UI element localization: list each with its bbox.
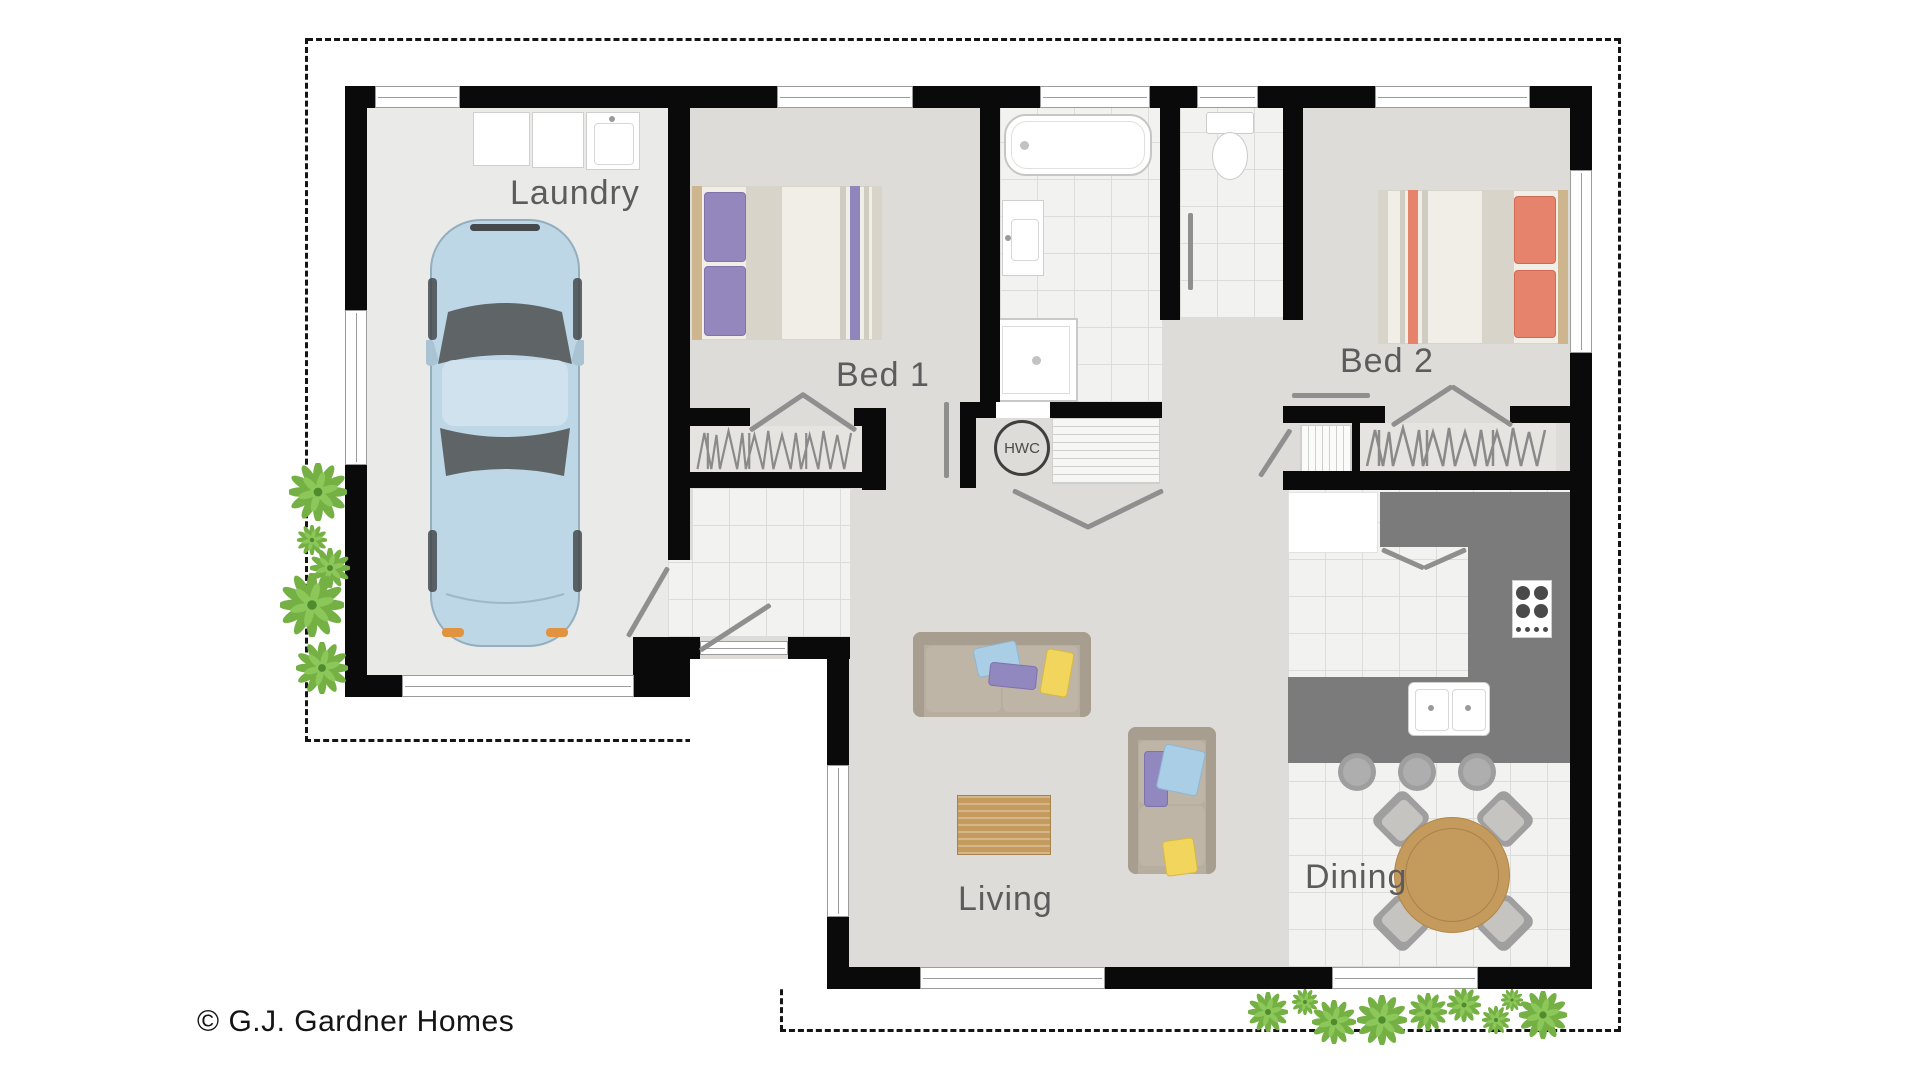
wall-hwc-nook: [960, 402, 976, 488]
floor-plan-canvas: Laundry Bed 1: [0, 0, 1920, 1080]
hwc-label: HWC: [1004, 440, 1040, 457]
wall-entry-right: [788, 637, 850, 659]
wall-bed2-wardrobe-left: [1283, 406, 1385, 423]
washing-machine-icon: [532, 112, 584, 168]
bar-stool-icon: [1398, 753, 1436, 791]
bathroom-window: [1040, 86, 1150, 108]
wall-wc-west: [1160, 108, 1180, 320]
shower-drain: [1032, 356, 1041, 365]
bathtub-drain: [1020, 141, 1029, 150]
wall-wc-east: [1283, 108, 1303, 320]
bed1-label: Bed 1: [836, 356, 930, 395]
bar-stool-icon: [1458, 753, 1496, 791]
bathroom-door-leaf: [944, 402, 949, 478]
bed1-window: [777, 86, 913, 108]
bed1-bed-icon: [692, 186, 882, 340]
car-icon: [426, 212, 584, 654]
bed2-door-leaf: [1292, 393, 1370, 398]
bed2-linen-cupboard: [1300, 425, 1352, 473]
plant-icon: [296, 642, 348, 694]
wall-bed2-wardrobe-right: [1510, 406, 1570, 423]
bed2-bed-icon: [1378, 190, 1568, 344]
plant-icon: [1447, 988, 1481, 1022]
plant-icon: [280, 573, 344, 637]
plant-icon: [1357, 995, 1407, 1045]
wardrobe-hangers-icon: [694, 427, 858, 473]
cooktop-icon: [1512, 580, 1552, 638]
dining-table-icon: [1394, 817, 1510, 933]
boundary-top: [307, 38, 1620, 41]
pantry: [1380, 492, 1468, 547]
wall-garage-corner: [633, 637, 690, 697]
garage-side-window: [345, 310, 367, 465]
entry-floor: [692, 488, 850, 637]
porch-area: [690, 659, 827, 989]
laundry-tub-icon: [586, 112, 640, 170]
garage-door: [402, 675, 634, 697]
bed2-window: [1375, 86, 1530, 108]
living-window: [920, 967, 1105, 989]
wall-garage-east: [668, 108, 690, 560]
wall-bed1-bath: [980, 108, 1000, 402]
kitchen-sink-icon: [1408, 682, 1490, 736]
vanity-icon: [1002, 200, 1044, 276]
plant-icon: [1519, 991, 1567, 1039]
living-label: Living: [958, 880, 1053, 919]
sofa-icon: [1128, 727, 1216, 874]
hot-water-cylinder-icon: HWC: [994, 420, 1050, 476]
plant-icon: [289, 463, 347, 521]
wall-bed1-wardrobe-bottom: [690, 472, 886, 488]
coffee-table-icon: [957, 795, 1051, 855]
plant-icon: [1312, 1000, 1356, 1044]
plant-icon: [1248, 992, 1288, 1032]
laundry-counter: [473, 112, 530, 166]
wc-window: [1197, 86, 1258, 108]
wall-linen-divider: [1352, 423, 1360, 471]
copyright-text: © G.J. Gardner Homes: [197, 1005, 514, 1039]
sofa-icon: [913, 632, 1091, 717]
laundry-label: Laundry: [510, 174, 640, 213]
boundary-right: [1618, 38, 1621, 1032]
wall-bed1-wardrobe-left: [690, 408, 750, 426]
garage-window: [375, 86, 460, 108]
plant-icon: [1409, 993, 1447, 1031]
dining-label: Dining: [1305, 858, 1407, 897]
linen-shelves: [1052, 418, 1160, 484]
fridge-space: [1288, 492, 1378, 553]
bar-stool-icon: [1338, 753, 1376, 791]
living-side-window: [827, 765, 849, 917]
wardrobe-hangers-icon: [1363, 424, 1553, 470]
wall-bed2-wardrobe-bottom: [1283, 471, 1570, 490]
toilet-icon: [1206, 112, 1254, 134]
bath-door-opening: [996, 402, 1050, 418]
bed2-label: Bed 2: [1340, 342, 1434, 381]
toilet-bowl: [1212, 132, 1248, 180]
dining-window: [1332, 967, 1478, 989]
bed2-side-window: [1570, 170, 1592, 353]
wc-door-leaf: [1188, 213, 1193, 290]
entry-floor-doorway: [668, 560, 692, 637]
